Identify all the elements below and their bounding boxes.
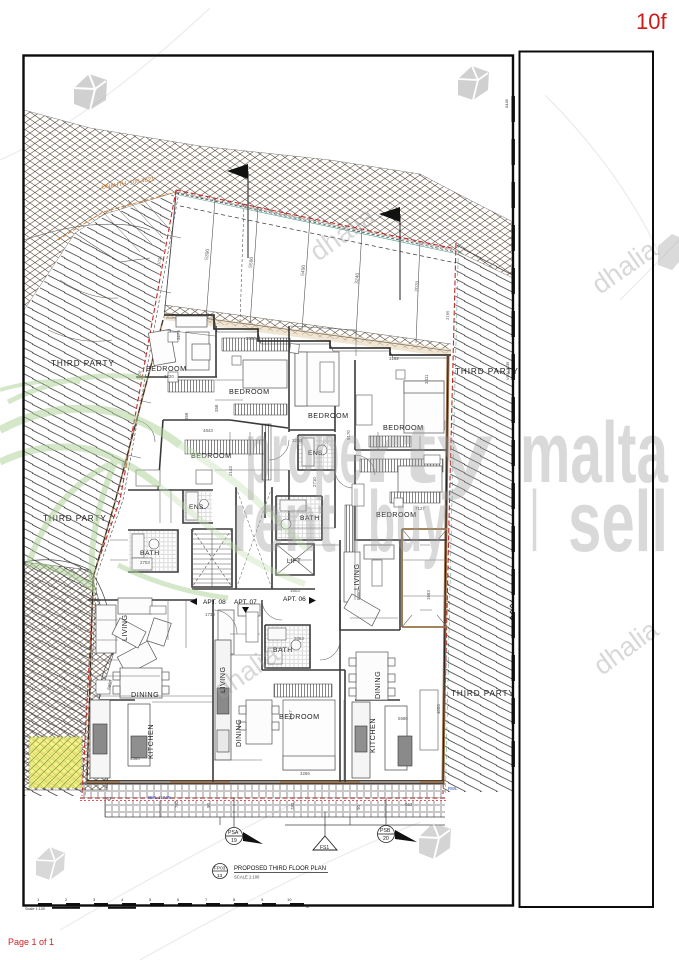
svg-text:Page 1 of 1: Page 1 of 1 — [8, 937, 54, 947]
svg-text:5390: 5390 — [204, 248, 211, 260]
svg-text:APT. 06: APT. 06 — [283, 596, 306, 603]
svg-text:4843: 4843 — [203, 428, 213, 433]
svg-text:DINING: DINING — [131, 690, 159, 699]
svg-text:3240: 3240 — [354, 272, 361, 284]
svg-text:5580: 5580 — [398, 716, 408, 721]
svg-text:1603: 1603 — [290, 588, 300, 593]
svg-text:563: 563 — [405, 802, 413, 807]
svg-text:782: 782 — [290, 802, 295, 810]
svg-text:RWL 117.85: RWL 117.85 — [148, 795, 171, 800]
svg-text:10f: 10f — [636, 9, 667, 34]
svg-text:APT. 07: APT. 07 — [234, 599, 257, 606]
svg-text:19: 19 — [231, 838, 237, 844]
svg-text:APT. 08: APT. 08 — [203, 599, 226, 606]
svg-text:PSB: PSB — [380, 828, 391, 834]
svg-text:3185: 3185 — [445, 310, 450, 320]
svg-text:90: 90 — [356, 805, 361, 810]
svg-text:PSA: PSA — [228, 830, 239, 836]
svg-text:2063: 2063 — [294, 636, 304, 641]
svg-text:3411: 3411 — [424, 374, 429, 384]
svg-text:3266: 3266 — [300, 771, 310, 776]
svg-text:782: 782 — [174, 800, 179, 808]
svg-text:2070: 2070 — [414, 280, 421, 292]
svg-text:463: 463 — [104, 796, 112, 801]
svg-text:5490: 5490 — [300, 264, 307, 276]
svg-text:BEDROOM: BEDROOM — [279, 712, 320, 721]
svg-text:buy: buy — [368, 474, 447, 570]
svg-text:FS1: FS1 — [320, 845, 329, 851]
svg-text:PROPOSED THIRD FLOOR PLAN: PROPOSED THIRD FLOOR PLAN — [234, 865, 326, 872]
svg-text:1583: 1583 — [426, 590, 431, 600]
svg-text:358: 358 — [214, 404, 219, 412]
svg-text:DINING: DINING — [373, 671, 382, 699]
svg-text:3275: 3275 — [176, 330, 181, 340]
svg-text:Scale 1:100: Scale 1:100 — [25, 907, 45, 911]
svg-text:90: 90 — [206, 803, 211, 808]
svg-text:l: l — [352, 474, 360, 570]
svg-text:3147: 3147 — [288, 710, 293, 720]
svg-text:0449: 0449 — [504, 98, 509, 108]
svg-text:13: 13 — [217, 873, 223, 879]
svg-text:20: 20 — [383, 836, 389, 842]
svg-text:DINING: DINING — [234, 719, 243, 747]
svg-text:FP03: FP03 — [214, 866, 226, 872]
svg-text:4055: 4055 — [436, 704, 441, 714]
svg-text:10: 10 — [287, 897, 292, 902]
svg-text:3220: 3220 — [164, 374, 174, 379]
svg-text:BEDROOM: BEDROOM — [146, 364, 187, 373]
svg-text:THIRD PARTY: THIRD PARTY — [51, 359, 115, 368]
svg-text:RWL: RWL — [448, 786, 458, 791]
svg-text:KITCHEN: KITCHEN — [146, 724, 155, 759]
svg-text:3162: 3162 — [389, 356, 399, 361]
svg-text:BATH: BATH — [140, 550, 160, 557]
svg-text:6450: 6450 — [356, 590, 361, 600]
svg-text:4360: 4360 — [130, 756, 140, 761]
svg-text:1730: 1730 — [205, 612, 215, 617]
svg-text:LIVING: LIVING — [120, 614, 129, 641]
svg-text:2703: 2703 — [140, 560, 150, 565]
svg-text:BEDROOM: BEDROOM — [229, 387, 270, 396]
svg-text:l: l — [531, 474, 538, 570]
svg-text:2690: 2690 — [246, 336, 256, 341]
svg-text:rent: rent — [232, 474, 336, 570]
svg-text:5590: 5590 — [248, 256, 255, 268]
svg-text:THIRD PARTY: THIRD PARTY — [451, 689, 515, 698]
svg-text:KITCHEN: KITCHEN — [368, 718, 377, 753]
svg-text:SCALE 1:100: SCALE 1:100 — [234, 875, 260, 880]
svg-text:368: 368 — [184, 412, 189, 420]
svg-text:VGN 1135: VGN 1135 — [505, 361, 510, 380]
